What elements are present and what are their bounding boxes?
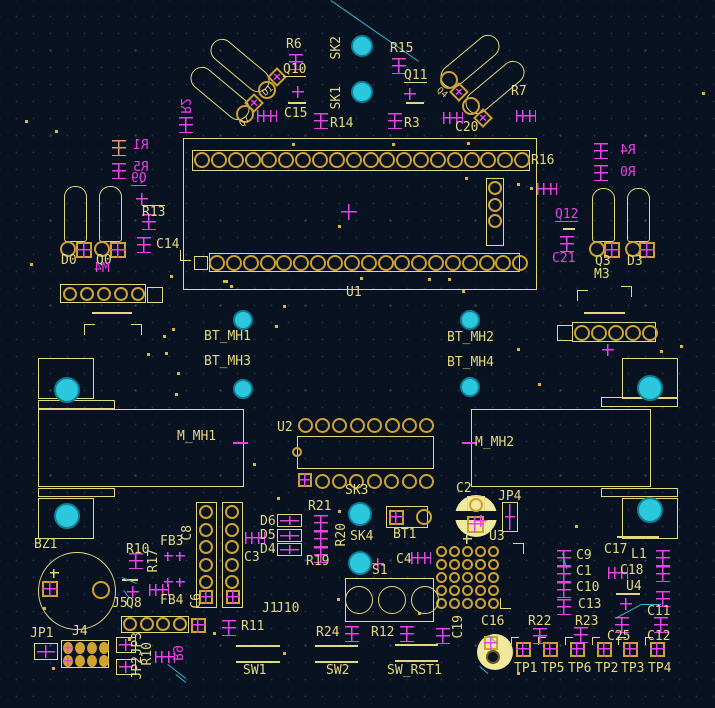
ref-label-c10[interactable]: C10 (576, 582, 599, 593)
through-hole-pad[interactable] (295, 152, 311, 168)
two-pad-symbol[interactable] (557, 566, 571, 582)
through-hole-pad[interactable] (225, 505, 239, 519)
through-hole-pad[interactable] (312, 152, 328, 168)
led-outline[interactable] (64, 186, 87, 242)
ref-label-tp6[interactable]: TP6 (568, 663, 591, 674)
through-hole-pad[interactable] (315, 474, 330, 489)
via-dot[interactable] (283, 305, 286, 308)
ref-label-tp4[interactable]: TP4 (648, 663, 671, 674)
via-dot[interactable] (52, 667, 55, 670)
ref-label-bt-mh3[interactable]: BT_MH3 (204, 356, 251, 367)
through-hole-pad[interactable] (260, 255, 276, 271)
through-hole-pad[interactable] (462, 572, 473, 583)
mounting-hole[interactable] (233, 310, 253, 330)
ref-label-bz1[interactable]: BZ1 (34, 539, 57, 550)
test-point-pad[interactable] (570, 642, 585, 657)
through-hole-pad[interactable] (411, 586, 439, 614)
through-hole-pad[interactable] (199, 575, 213, 589)
two-pad-symbol[interactable] (557, 582, 571, 598)
ref-label-u2[interactable]: U2 (277, 422, 293, 433)
ref-label-d4[interactable]: D4 (260, 544, 276, 555)
ref-label-q11[interactable]: Q11 (404, 70, 427, 83)
ref-label-tp5[interactable]: TP5 (541, 663, 564, 674)
ref-label-c15[interactable]: C15 (284, 108, 307, 119)
via-dot[interactable] (213, 632, 216, 635)
through-hole-pad[interactable] (488, 572, 499, 583)
ref-label-sk2[interactable]: SK2 (330, 36, 343, 59)
ref-label-r2[interactable]: R2 (178, 98, 191, 114)
through-hole-pad[interactable] (350, 418, 365, 433)
ref-label-c9[interactable]: C9 (576, 550, 592, 561)
ref-label-c3[interactable]: C3 (244, 552, 260, 563)
through-hole-pad[interactable] (156, 617, 170, 631)
through-hole-pad[interactable] (445, 255, 461, 271)
two-pad-symbol[interactable] (594, 165, 608, 181)
two-pad-symbol[interactable] (400, 626, 414, 642)
ref-label-r4[interactable]: R4 (620, 145, 636, 156)
ref-label-u1[interactable]: U1 (346, 287, 362, 298)
ref-label-c21[interactable]: C21 (552, 253, 575, 264)
through-hole-pad[interactable] (367, 418, 382, 433)
through-hole-pad[interactable] (436, 546, 447, 557)
through-hole-pad[interactable] (63, 287, 77, 301)
ref-label-r9[interactable]: R9 (170, 645, 183, 661)
pcb-layout-canvas[interactable]: R6Q10SK2SK1R15Q11R7C15R14R3C20D1Q7Q4R2R1… (0, 0, 715, 708)
through-hole-pad[interactable] (378, 586, 406, 614)
ref-label-sw1[interactable]: SW1 (243, 665, 266, 676)
courtyard-corner (500, 598, 511, 609)
jumper-pad-box[interactable] (277, 529, 302, 542)
through-hole-pad[interactable] (462, 598, 473, 609)
via-dot[interactable] (30, 263, 33, 266)
via-dot[interactable] (25, 120, 28, 123)
jumper-pad-box[interactable] (502, 502, 518, 532)
through-hole-pad[interactable] (315, 418, 330, 433)
square-pad[interactable] (76, 242, 92, 258)
via-dot[interactable] (275, 325, 278, 328)
mounting-hole[interactable] (351, 81, 373, 103)
through-hole-pad[interactable] (462, 546, 473, 557)
via-dot[interactable] (462, 290, 465, 293)
ref-label-jp1[interactable]: JP1 (30, 628, 53, 639)
through-hole-pad[interactable] (226, 255, 242, 271)
through-hole-pad[interactable] (332, 418, 347, 433)
ref-label-c17[interactable]: C17 (604, 544, 627, 555)
through-hole-pad[interactable] (384, 474, 399, 489)
through-hole-pad[interactable] (428, 255, 444, 271)
through-hole-pad[interactable] (462, 255, 478, 271)
ref-label-sk1[interactable]: SK1 (330, 86, 343, 109)
ref-label-s1[interactable]: S1 (372, 565, 388, 576)
oval-pad[interactable] (87, 642, 97, 654)
ref-label-d6[interactable]: D6 (260, 516, 276, 527)
two-pad-symbol-horizontal[interactable] (537, 183, 557, 195)
ref-label-r16[interactable]: R16 (531, 155, 554, 166)
ref-label-c20[interactable]: C20 (455, 122, 478, 133)
via-dot[interactable] (338, 510, 341, 513)
through-hole-pad[interactable] (413, 152, 429, 168)
square-pad[interactable] (298, 473, 312, 487)
through-hole-pad[interactable] (194, 152, 210, 168)
through-hole-pad[interactable] (625, 325, 641, 341)
through-hole-pad[interactable] (488, 546, 499, 557)
origin-cross (292, 86, 304, 98)
ref-label-c19[interactable]: C19 (452, 615, 465, 638)
ref-label-q9[interactable]: Q9 (131, 173, 147, 186)
through-hole-pad[interactable] (173, 617, 187, 631)
through-hole-pad[interactable] (449, 559, 460, 570)
footprint-outline[interactable] (38, 400, 115, 409)
through-hole-pad[interactable] (123, 617, 137, 631)
through-hole-pad[interactable] (225, 523, 239, 537)
ref-label-c16[interactable]: C16 (481, 616, 504, 627)
via-dot[interactable] (170, 275, 173, 278)
two-pad-symbol[interactable] (533, 628, 547, 644)
round-pad[interactable] (469, 498, 483, 512)
ref-label-r10[interactable]: R10 (141, 642, 154, 665)
footprint-outline[interactable] (194, 256, 208, 270)
square-pad[interactable] (42, 581, 58, 597)
via-dot[interactable] (283, 652, 286, 655)
through-hole-pad[interactable] (361, 255, 377, 271)
through-hole-pad[interactable] (225, 558, 239, 572)
ref-label-c2[interactable]: C2 (456, 483, 472, 494)
ref-label-r14[interactable]: R14 (330, 118, 353, 129)
square-pad[interactable] (226, 590, 240, 604)
ref-label-l1[interactable]: L1 (631, 549, 647, 560)
through-hole-pad[interactable] (419, 474, 434, 489)
via-dot[interactable] (517, 183, 520, 186)
via-dot[interactable] (43, 607, 46, 610)
oval-pad[interactable] (87, 655, 97, 667)
ref-label-d5[interactable]: D5 (260, 530, 276, 541)
ref-label-sw-rst1[interactable]: SW_RST1 (387, 665, 442, 676)
ref-label-r13[interactable]: R13 (142, 205, 165, 218)
ref-label-r23[interactable]: R23 (575, 616, 598, 627)
through-hole-pad[interactable] (225, 540, 239, 554)
ref-label-r24[interactable]: R24 (316, 627, 339, 638)
two-pad-symbol[interactable] (112, 140, 126, 156)
mounting-hole[interactable] (637, 497, 663, 523)
ref-label-j4[interactable]: J4 (72, 626, 88, 637)
round-pad[interactable] (92, 581, 110, 599)
ref-label-q8[interactable]: Q8 (126, 598, 142, 609)
via-dot[interactable] (530, 187, 533, 190)
ref-label-r7[interactable]: R7 (511, 86, 527, 97)
two-pad-symbol[interactable] (314, 515, 328, 531)
through-hole-pad[interactable] (475, 559, 486, 570)
footprint-outline[interactable] (601, 397, 678, 407)
through-hole-pad[interactable] (436, 559, 447, 570)
two-pad-symbol[interactable] (222, 620, 236, 636)
ref-label-c14[interactable]: C14 (156, 239, 179, 250)
ref-label-tp3[interactable]: TP3 (621, 663, 644, 674)
through-hole-pad[interactable] (430, 152, 446, 168)
through-hole-pad[interactable] (436, 572, 447, 583)
through-hole-pad[interactable] (402, 418, 417, 433)
ref-label-bt-mh4[interactable]: BT_MH4 (447, 357, 494, 368)
ref-label-c18[interactable]: C18 (620, 565, 643, 576)
ref-label-r17[interactable]: R17 (147, 549, 160, 572)
via-dot[interactable] (177, 372, 180, 375)
ref-label-c6[interactable]: C6 (190, 593, 203, 609)
footprint-outline[interactable] (601, 488, 678, 497)
ref-label-c8[interactable]: C8 (181, 525, 194, 541)
through-hole-pad[interactable] (642, 325, 658, 341)
through-hole-pad[interactable] (245, 152, 261, 168)
through-hole-pad[interactable] (97, 287, 111, 301)
through-hole-pad[interactable] (140, 617, 154, 631)
through-hole-pad[interactable] (488, 198, 502, 212)
via-dot[interactable] (465, 177, 468, 180)
through-hole-pad[interactable] (211, 152, 227, 168)
two-pad-symbol[interactable] (179, 117, 193, 133)
through-hole-pad[interactable] (462, 585, 473, 596)
via-dot[interactable] (292, 143, 295, 146)
through-hole-pad[interactable] (80, 287, 94, 301)
mounting-hole[interactable] (637, 375, 663, 401)
two-pad-symbol[interactable] (314, 113, 328, 129)
ref-label-c25[interactable]: C25 (607, 631, 630, 642)
through-hole-pad[interactable] (344, 255, 360, 271)
two-pad-symbol-horizontal[interactable] (411, 552, 431, 564)
footprint-outline[interactable] (297, 436, 434, 469)
ref-label-bt-mh2[interactable]: BT_MH2 (447, 332, 494, 343)
ref-label-c1[interactable]: C1 (576, 566, 592, 577)
via-dot[interactable] (392, 143, 395, 146)
through-hole-pad[interactable] (310, 255, 326, 271)
mounting-hole[interactable] (233, 379, 253, 399)
ref-label-q10[interactable]: Q10 (283, 64, 306, 77)
jumper-pad-box[interactable] (277, 543, 302, 556)
ref-label-m3[interactable]: M3 (594, 269, 610, 280)
through-hole-pad[interactable] (475, 585, 486, 596)
footprint-outline[interactable] (38, 488, 115, 497)
ref-label-sk3[interactable]: SK3 (345, 485, 368, 496)
via-dot[interactable] (680, 345, 683, 348)
through-hole-pad[interactable] (345, 586, 373, 614)
through-hole-pad[interactable] (449, 572, 460, 583)
square-pad[interactable] (110, 242, 126, 258)
through-hole-pad[interactable] (199, 523, 213, 537)
led-outline[interactable] (627, 188, 650, 242)
through-hole-pad[interactable] (385, 418, 400, 433)
ref-label-m-mh2[interactable]: M_MH2 (475, 437, 514, 448)
through-hole-pad[interactable] (449, 546, 460, 557)
ref-label-tp1[interactable]: TP1 (514, 663, 537, 674)
through-hole-pad[interactable] (114, 287, 128, 301)
through-hole-pad[interactable] (419, 418, 434, 433)
two-pad-symbol[interactable] (560, 236, 574, 252)
oval-pad[interactable] (99, 642, 109, 654)
ref-label-u4[interactable]: U4 (626, 581, 642, 592)
two-pad-symbol[interactable] (112, 163, 126, 179)
through-hole-pad[interactable] (488, 598, 499, 609)
through-hole-pad[interactable] (199, 558, 213, 572)
through-hole-pad[interactable] (475, 546, 486, 557)
two-pad-symbol[interactable] (137, 237, 151, 253)
via-dot[interactable] (702, 92, 705, 95)
ref-label-r3[interactable]: R3 (404, 118, 420, 129)
through-hole-pad[interactable] (475, 598, 486, 609)
through-hole-pad[interactable] (447, 152, 463, 168)
via-dot[interactable] (277, 497, 280, 500)
via-dot[interactable] (538, 383, 541, 386)
round-pad[interactable] (292, 447, 302, 457)
two-pad-symbol[interactable] (656, 550, 670, 566)
through-hole-pad[interactable] (608, 325, 624, 341)
square-pad[interactable] (389, 510, 404, 525)
via-dot[interactable] (337, 598, 340, 601)
via-dot[interactable] (575, 525, 578, 528)
ref-label-m-mh1[interactable]: M_MH1 (177, 431, 216, 442)
footprint-outline[interactable] (38, 409, 244, 487)
round-pad[interactable] (416, 509, 432, 525)
via-dot[interactable] (338, 225, 341, 228)
via-dot[interactable] (448, 278, 451, 281)
through-hole-pad[interactable] (591, 325, 607, 341)
through-hole-pad[interactable] (346, 152, 362, 168)
via-dot[interactable] (467, 142, 470, 145)
through-hole-pad[interactable] (243, 255, 259, 271)
ref-label-q12[interactable]: Q12 (555, 209, 578, 222)
through-hole-pad[interactable] (363, 152, 379, 168)
mounting-hole[interactable] (54, 377, 80, 403)
mounting-hole[interactable] (351, 35, 373, 57)
two-pad-symbol[interactable] (436, 628, 450, 644)
ref-label-bt1[interactable]: BT1 (393, 529, 416, 540)
through-hole-pad[interactable] (199, 505, 213, 519)
led-outline[interactable] (592, 188, 615, 242)
ref-label-r22[interactable]: R22 (528, 616, 551, 627)
ref-label-r0[interactable]: R0 (620, 167, 636, 178)
via-dot[interactable] (253, 463, 256, 466)
through-hole-pad[interactable] (209, 255, 225, 271)
pad-crosshair (570, 642, 585, 657)
two-pad-symbol[interactable] (574, 627, 588, 643)
via-dot[interactable] (55, 130, 58, 133)
ref-label-c4[interactable]: C4 (396, 554, 412, 565)
ref-label-c13[interactable]: C13 (578, 599, 601, 610)
through-hole-pad[interactable] (488, 559, 499, 570)
two-pad-symbol[interactable] (345, 626, 359, 642)
ref-label-r12[interactable]: R12 (371, 627, 394, 638)
through-hole-pad[interactable] (378, 255, 394, 271)
ref-label-r6[interactable]: R6 (286, 39, 302, 50)
ref-label-jp4[interactable]: JP4 (498, 491, 521, 502)
oval-pad[interactable] (75, 642, 85, 654)
via-dot[interactable] (230, 285, 233, 288)
ref-label-j10[interactable]: J10 (276, 603, 299, 614)
through-hole-pad[interactable] (488, 214, 502, 228)
through-hole-pad[interactable] (367, 474, 382, 489)
through-hole-pad[interactable] (228, 152, 244, 168)
through-hole-pad[interactable] (449, 585, 460, 596)
via-dot[interactable] (163, 335, 166, 338)
via-dot[interactable] (175, 393, 178, 396)
ref-label-bt-mh1[interactable]: BT_MH1 (204, 331, 251, 342)
through-hole-pad[interactable] (488, 585, 499, 596)
footprint-outline[interactable] (557, 325, 573, 341)
two-pad-symbol[interactable] (594, 143, 608, 159)
oval-pad[interactable] (75, 655, 85, 667)
through-hole-pad[interactable] (574, 325, 590, 341)
via-dot[interactable] (147, 353, 150, 356)
test-point-pad[interactable] (516, 642, 531, 657)
ref-label-d3[interactable]: D3 (627, 256, 643, 267)
two-pad-symbol[interactable] (656, 566, 670, 582)
through-hole-pad[interactable] (402, 474, 417, 489)
ref-label-r19[interactable]: R19 (306, 556, 329, 567)
drill-hole[interactable] (486, 650, 500, 664)
through-hole-pad[interactable] (329, 152, 345, 168)
mounting-hole[interactable] (460, 310, 480, 330)
two-pad-symbol[interactable] (314, 531, 328, 547)
mounting-hole[interactable] (54, 503, 80, 529)
via-dot[interactable] (517, 348, 520, 351)
ref-label-c12[interactable]: C12 (647, 631, 670, 642)
ref-label-sk4[interactable]: SK4 (350, 531, 373, 542)
through-hole-pad[interactable] (199, 540, 213, 554)
via-dot[interactable] (172, 328, 175, 331)
jumper-pad-box[interactable] (277, 514, 302, 527)
two-pad-symbol[interactable] (388, 113, 402, 129)
ref-label-r1[interactable]: R1 (133, 140, 149, 151)
ref-label-q3[interactable]: Q3 (595, 256, 611, 267)
mounting-hole[interactable] (348, 551, 372, 575)
footprint-outline[interactable] (147, 287, 163, 303)
ref-label-tp2[interactable]: TP2 (595, 663, 618, 674)
ref-label-m4[interactable]: M4 (94, 263, 110, 274)
through-hole-pad[interactable] (475, 572, 486, 583)
through-hole-pad[interactable] (464, 152, 480, 168)
through-hole-pad[interactable] (131, 287, 145, 301)
two-pad-symbol[interactable] (557, 599, 571, 615)
ref-label-r11[interactable]: R11 (241, 621, 264, 632)
through-hole-pad[interactable] (327, 255, 343, 271)
led-outline[interactable] (99, 186, 122, 242)
ref-label-d0[interactable]: D0 (61, 255, 77, 266)
ref-label-fb4[interactable]: FB4 (160, 595, 183, 606)
through-hole-pad[interactable] (488, 181, 502, 195)
ref-label-r15[interactable]: R15 (390, 43, 413, 54)
jumper-pad-box[interactable] (34, 643, 58, 660)
via-dot[interactable] (225, 280, 228, 283)
square-pad[interactable] (191, 618, 206, 633)
ref-label-sw2[interactable]: SW2 (326, 665, 349, 676)
via-dot[interactable] (660, 350, 663, 353)
origin-cross (164, 552, 173, 561)
through-hole-pad[interactable] (298, 418, 313, 433)
pad-crosshair (280, 545, 299, 554)
ref-label-r21[interactable]: R21 (308, 501, 331, 512)
through-hole-pad[interactable] (479, 255, 495, 271)
via-dot[interactable] (360, 277, 363, 280)
through-hole-pad[interactable] (462, 559, 473, 570)
mounting-hole[interactable] (348, 502, 372, 526)
through-hole-pad[interactable] (225, 575, 239, 589)
oval-pad[interactable] (99, 655, 109, 667)
via-dot[interactable] (428, 278, 431, 281)
two-pad-symbol-horizontal[interactable] (257, 110, 277, 122)
ref-label-r20[interactable]: R20 (335, 523, 348, 546)
via-dot[interactable] (165, 352, 168, 355)
ref-label-u3[interactable]: U3 (489, 531, 505, 542)
two-pad-symbol-horizontal[interactable] (516, 110, 536, 122)
ref-label-c11[interactable]: C11 (647, 606, 670, 617)
mounting-hole[interactable] (460, 377, 480, 397)
through-hole-pad[interactable] (449, 598, 460, 609)
